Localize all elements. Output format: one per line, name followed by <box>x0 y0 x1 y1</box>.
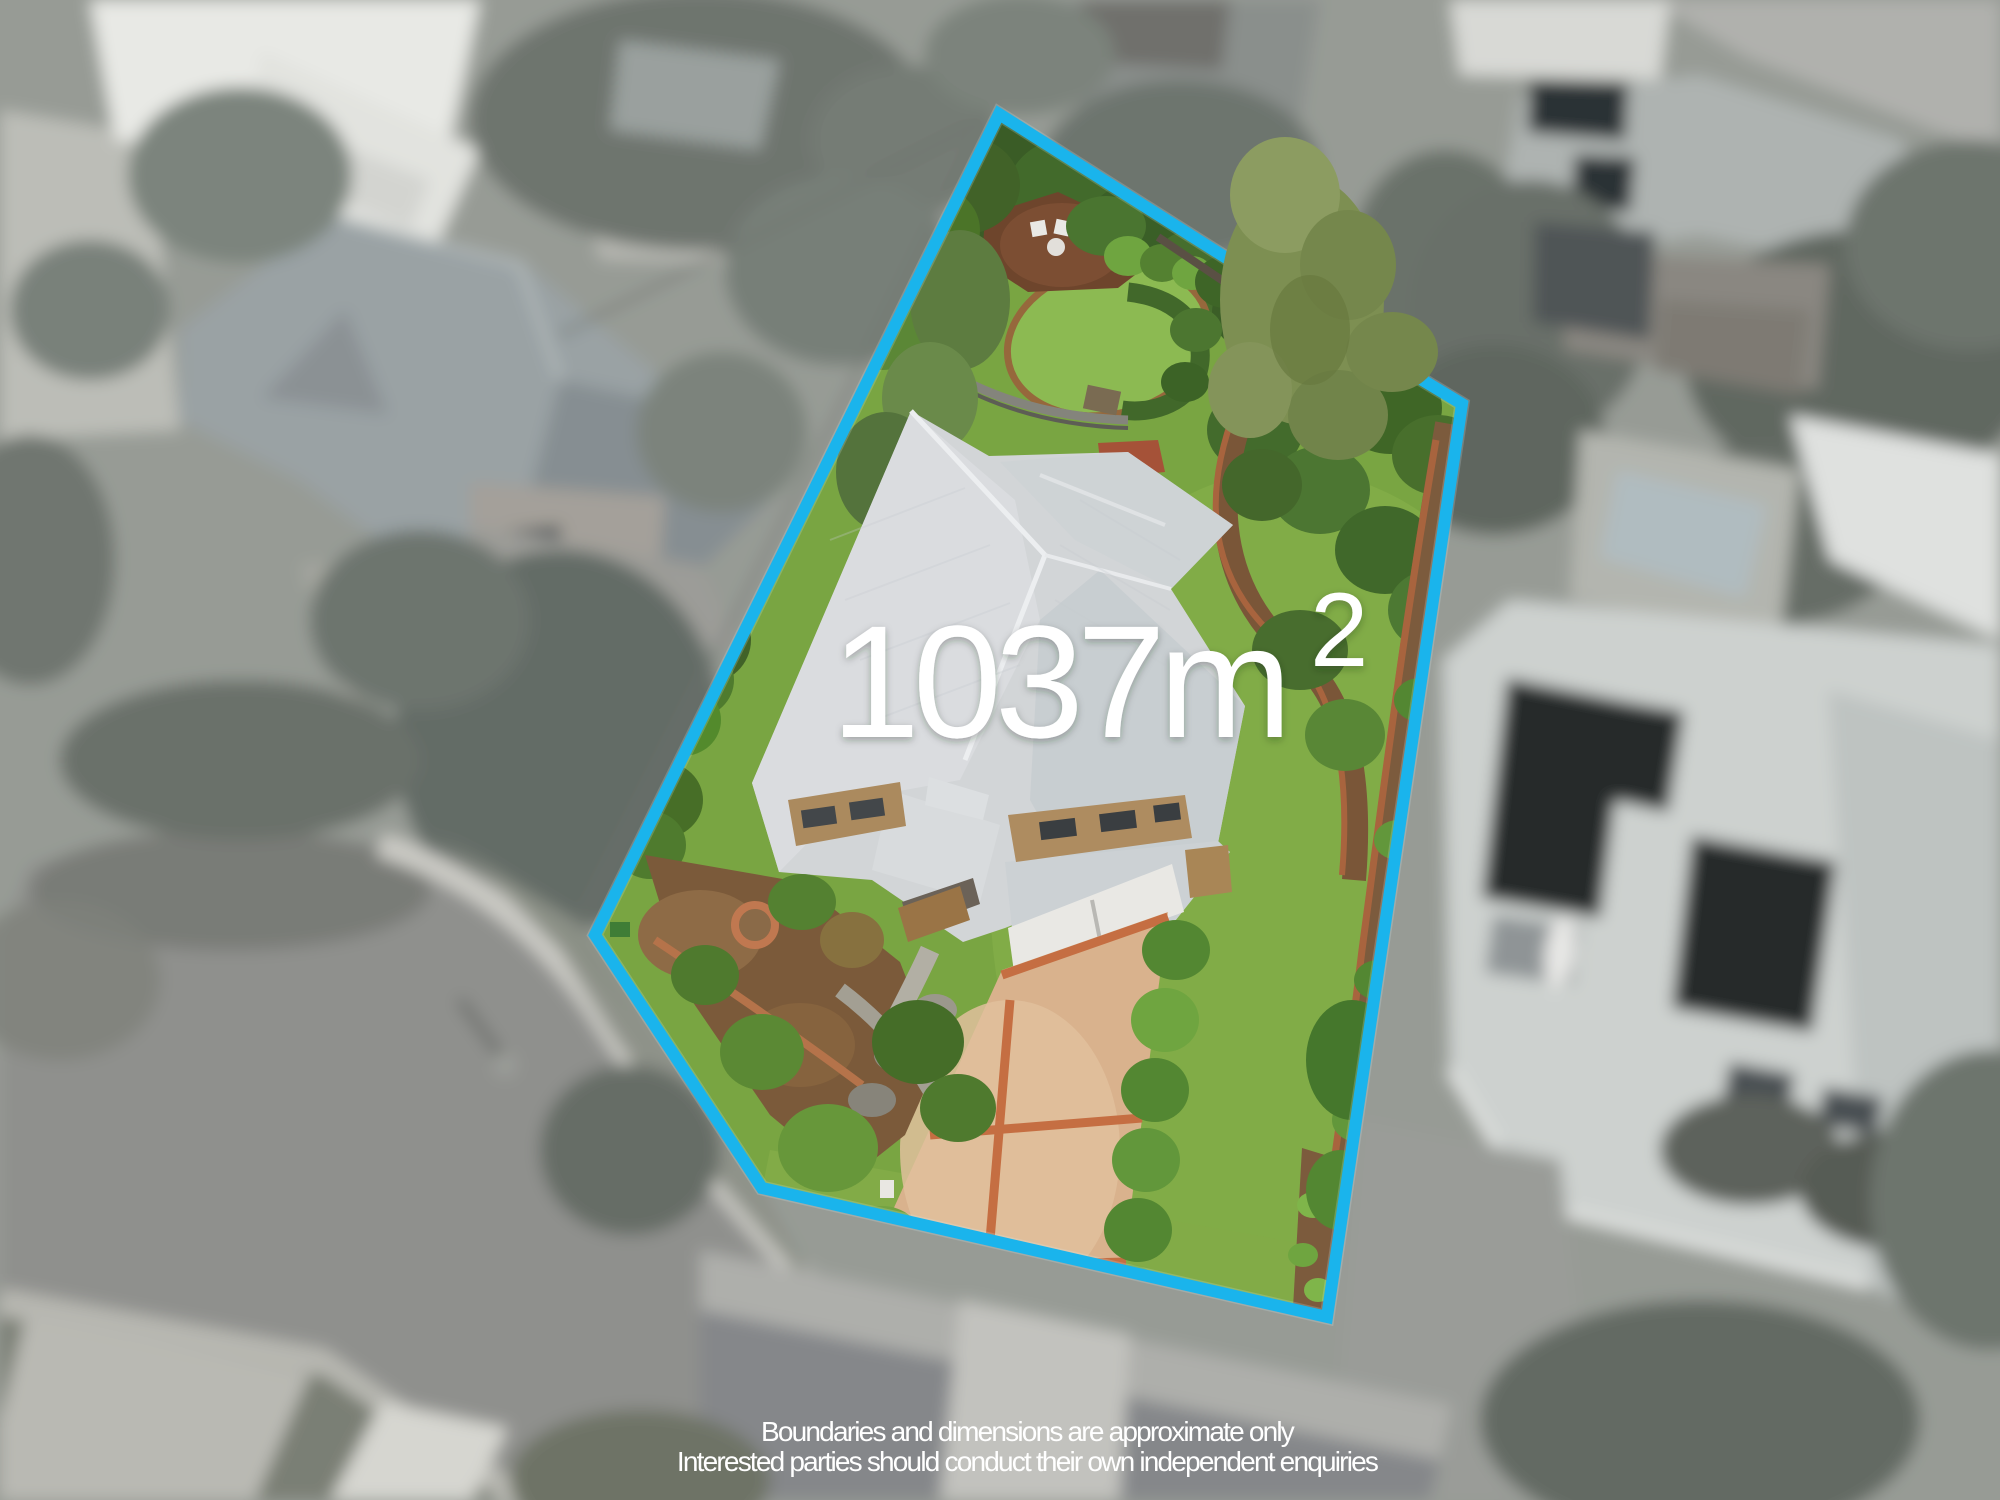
svg-text:2: 2 <box>1310 572 1368 689</box>
svg-text:Interested parties should cond: Interested parties should conduct their … <box>677 1446 1378 1477</box>
svg-text:Boundaries and dimensions are: Boundaries and dimensions are approximat… <box>761 1416 1295 1447</box>
svg-text:1037m: 1037m <box>831 592 1285 771</box>
